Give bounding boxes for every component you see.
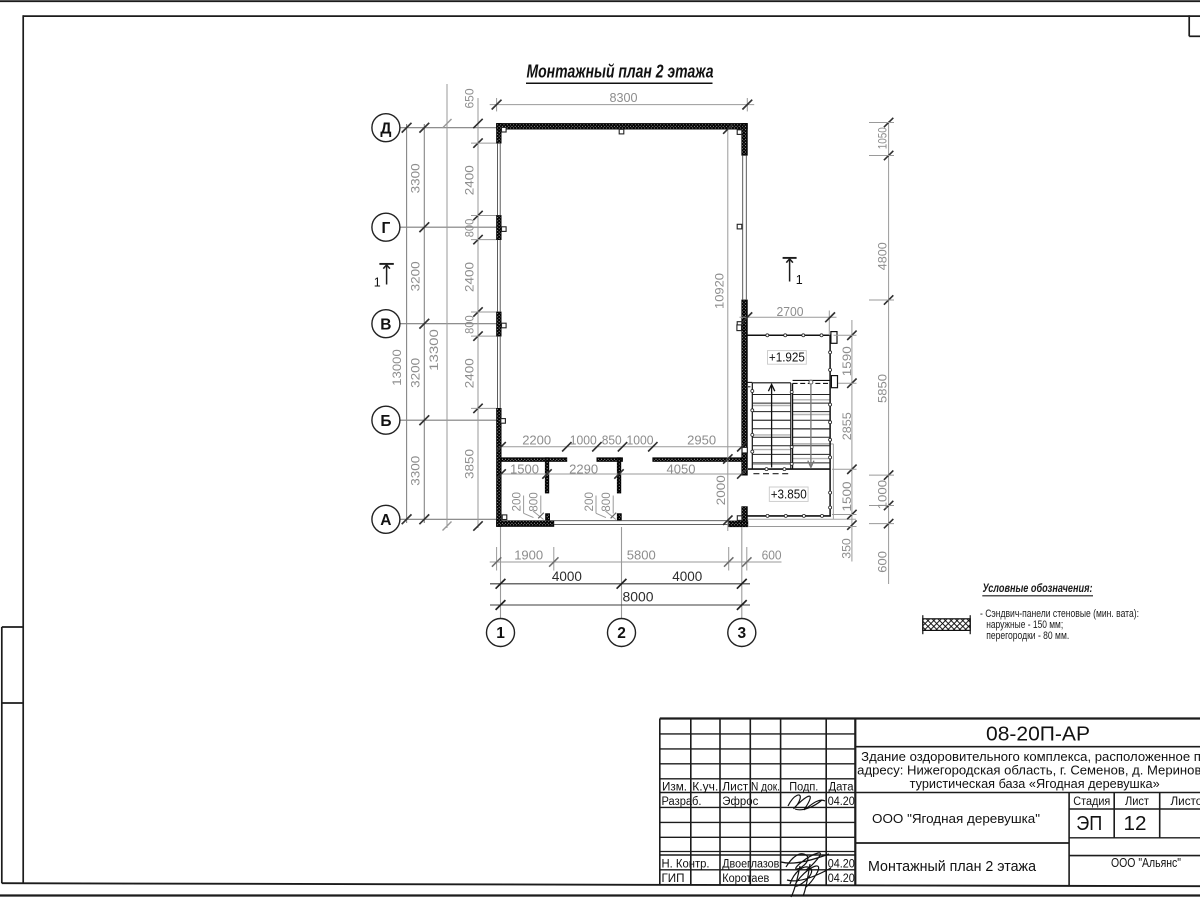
svg-text:4000: 4000: [672, 569, 702, 584]
svg-text:1050: 1050: [875, 127, 889, 149]
svg-text:800: 800: [462, 218, 476, 237]
svg-text:13300: 13300: [427, 329, 441, 371]
svg-text:04.20: 04.20: [828, 859, 855, 871]
svg-text:Д: Д: [380, 120, 391, 137]
svg-text:адресу: Нижегородская область,: адресу: Нижегородская область, г. Семено…: [857, 764, 1200, 778]
svg-text:2200: 2200: [522, 433, 551, 448]
svg-text:800: 800: [526, 492, 540, 512]
svg-text:Г: Г: [382, 220, 391, 237]
svg-text:ООО "Ягодная деревушка": ООО "Ягодная деревушка": [872, 811, 1040, 826]
svg-text:1000: 1000: [570, 433, 597, 448]
svg-text:4000: 4000: [552, 569, 582, 584]
svg-text:04.20: 04.20: [828, 873, 855, 885]
svg-text:Изм.: Изм.: [662, 781, 687, 793]
svg-text:800: 800: [599, 492, 613, 512]
svg-text:10920: 10920: [712, 273, 726, 309]
svg-text:Лист: Лист: [722, 781, 749, 793]
svg-text:2000: 2000: [714, 475, 728, 505]
svg-text:5800: 5800: [627, 548, 656, 563]
svg-text:1: 1: [496, 625, 505, 642]
svg-text:1590: 1590: [840, 346, 854, 376]
svg-text:1500: 1500: [510, 461, 539, 476]
svg-text:Монтажный план 2 этажа: Монтажный план 2 этажа: [868, 859, 1037, 875]
svg-text:1900: 1900: [514, 548, 543, 563]
svg-text:3: 3: [737, 625, 746, 642]
svg-text:ООО "Альянс": ООО "Альянс": [1111, 856, 1181, 870]
svg-text:2400: 2400: [462, 165, 476, 195]
svg-text:3300: 3300: [409, 455, 423, 485]
svg-text:600: 600: [762, 548, 782, 563]
svg-text:2: 2: [617, 625, 626, 642]
svg-text:2400: 2400: [462, 358, 476, 388]
svg-text:04.20: 04.20: [828, 796, 855, 808]
svg-text:600: 600: [875, 551, 889, 573]
svg-text:8000: 8000: [623, 590, 654, 605]
svg-text:2290: 2290: [569, 461, 598, 476]
svg-text:1500: 1500: [840, 481, 854, 511]
svg-text:3200: 3200: [409, 261, 423, 291]
svg-text:Здание оздоровительного компле: Здание оздоровительного комплекса, распо…: [861, 750, 1200, 764]
svg-text:К.уч.: К.уч.: [692, 781, 718, 793]
svg-text:Подп.: Подп.: [789, 781, 818, 793]
svg-text:Разраб.: Разраб.: [662, 796, 702, 808]
svg-text:+1.925: +1.925: [769, 350, 805, 365]
svg-text:Дата: Дата: [829, 781, 855, 793]
svg-text:+3.850: +3.850: [771, 487, 807, 502]
svg-text:В: В: [380, 316, 391, 333]
svg-text:3200: 3200: [409, 358, 423, 388]
svg-text:3300: 3300: [409, 163, 423, 193]
svg-text:А: А: [380, 512, 391, 529]
svg-text:Двоеглазов: Двоеглазов: [722, 859, 779, 871]
svg-text:Лист: Лист: [1125, 796, 1150, 808]
svg-text:08-20П-АР: 08-20П-АР: [986, 722, 1090, 745]
svg-text:4050: 4050: [667, 461, 696, 476]
svg-text:Коротаев: Коротаев: [722, 873, 769, 885]
svg-text:ЭП: ЭП: [1076, 813, 1102, 835]
svg-text:Условные обозначения:: Условные обозначения:: [983, 581, 1093, 595]
svg-text:12: 12: [1124, 813, 1147, 835]
svg-text:1: 1: [796, 273, 803, 287]
svg-text:800: 800: [462, 315, 476, 334]
svg-text:350: 350: [839, 538, 853, 559]
svg-text:Б: Б: [380, 413, 391, 430]
svg-text:13000: 13000: [390, 349, 404, 386]
svg-text:1000: 1000: [627, 433, 654, 448]
svg-text:Эфрос: Эфрос: [722, 796, 758, 808]
svg-text:Листов: Листов: [1171, 796, 1200, 808]
svg-text:Монтажный план 2 этажа: Монтажный план 2 этажа: [527, 61, 714, 82]
svg-text:Н. Контр.: Н. Контр.: [662, 859, 710, 871]
svg-text:200: 200: [509, 492, 523, 512]
svg-text:N док.: N док.: [751, 781, 780, 793]
svg-text:1000: 1000: [875, 479, 889, 509]
svg-text:3850: 3850: [462, 449, 476, 479]
svg-text:650: 650: [462, 88, 476, 108]
svg-text:туристическая база «Ягодная де: туристическая база «Ягодная деревушка»: [910, 777, 1160, 791]
svg-text:1: 1: [374, 276, 381, 290]
svg-text:ГИП: ГИП: [662, 873, 685, 885]
svg-text:2950: 2950: [687, 433, 716, 448]
svg-text:2700: 2700: [777, 304, 804, 319]
svg-text:850: 850: [602, 433, 622, 448]
svg-text:2855: 2855: [840, 412, 854, 440]
svg-text:перегородки - 80 мм.: перегородки - 80 мм.: [986, 630, 1069, 642]
svg-text:5850: 5850: [875, 374, 889, 403]
svg-text:4800: 4800: [875, 242, 889, 270]
svg-text:8300: 8300: [610, 90, 638, 105]
svg-text:200: 200: [582, 492, 596, 512]
svg-text:2400: 2400: [462, 262, 476, 292]
svg-text:Стадия: Стадия: [1073, 796, 1110, 808]
